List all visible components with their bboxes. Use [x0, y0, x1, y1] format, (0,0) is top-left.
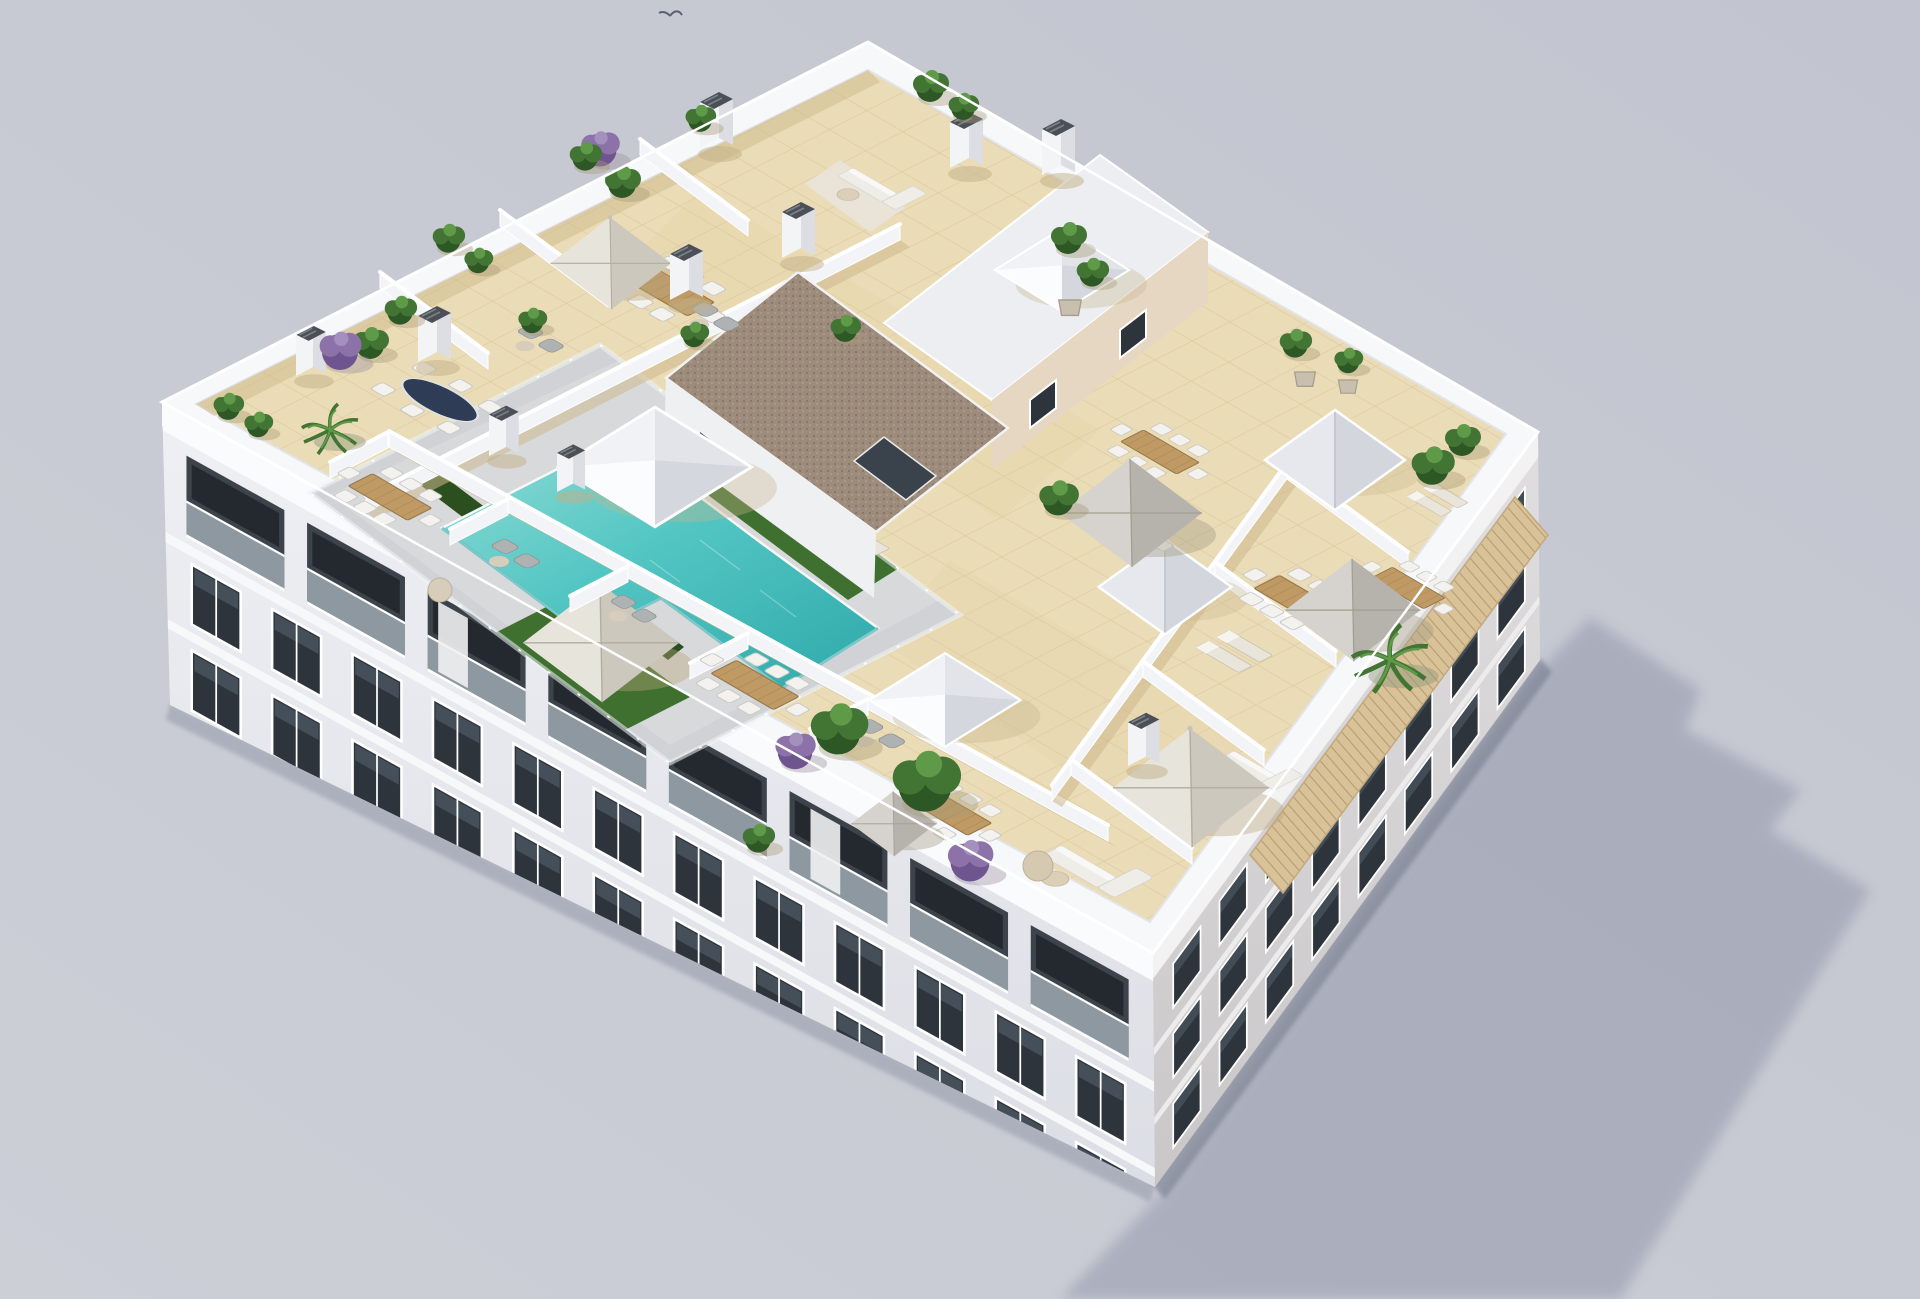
round-table — [1023, 851, 1053, 881]
render-canvas — [0, 0, 1920, 1299]
pouf — [428, 578, 452, 602]
rooftop-render — [0, 0, 1920, 1299]
